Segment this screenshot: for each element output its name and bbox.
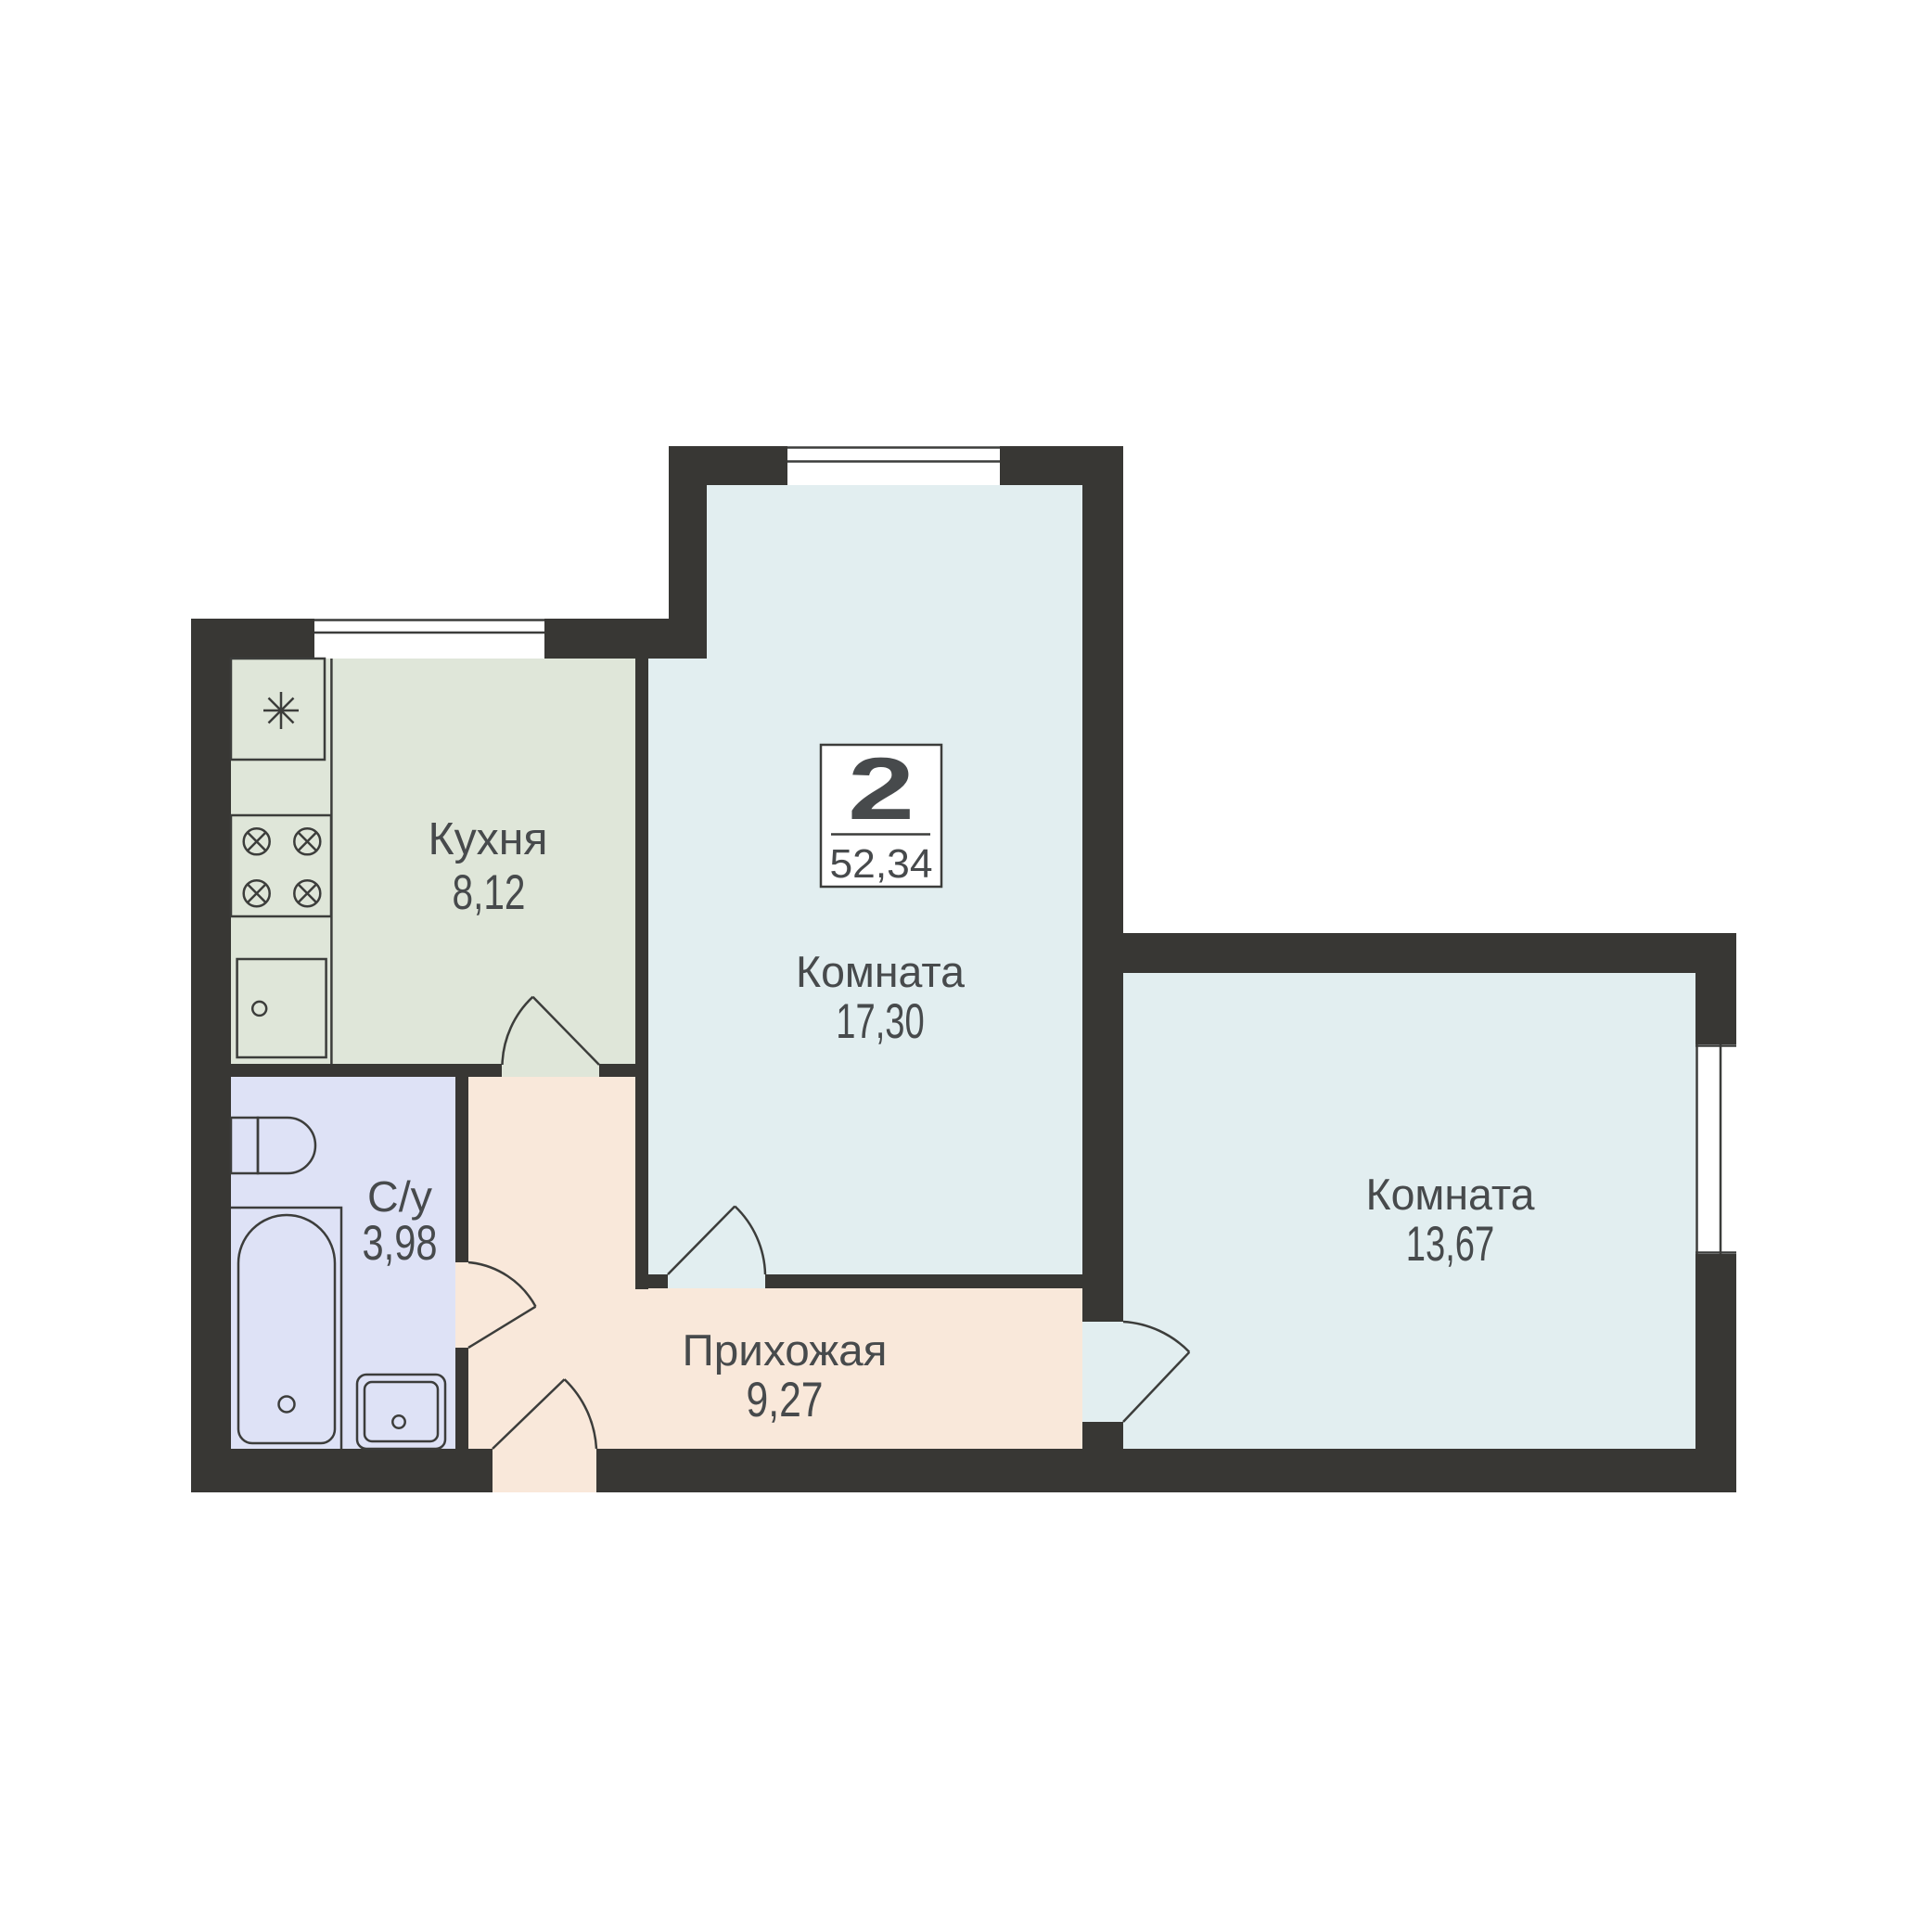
svg-text:8,12: 8,12 <box>453 865 526 920</box>
svg-text:13,67: 13,67 <box>1406 1217 1495 1272</box>
svg-text:Комната: Комната <box>796 947 966 996</box>
svg-text:9,27: 9,27 <box>747 1373 824 1427</box>
svg-text:Прихожая: Прихожая <box>683 1325 888 1375</box>
svg-text:17,30: 17,30 <box>836 994 925 1049</box>
svg-text:Комната: Комната <box>1366 1170 1536 1219</box>
svg-text:2: 2 <box>848 740 915 838</box>
svg-text:3,98: 3,98 <box>363 1216 438 1271</box>
svg-text:Кухня: Кухня <box>429 814 548 864</box>
svg-text:С/у: С/у <box>367 1172 432 1221</box>
svg-text:52,34: 52,34 <box>830 841 933 887</box>
